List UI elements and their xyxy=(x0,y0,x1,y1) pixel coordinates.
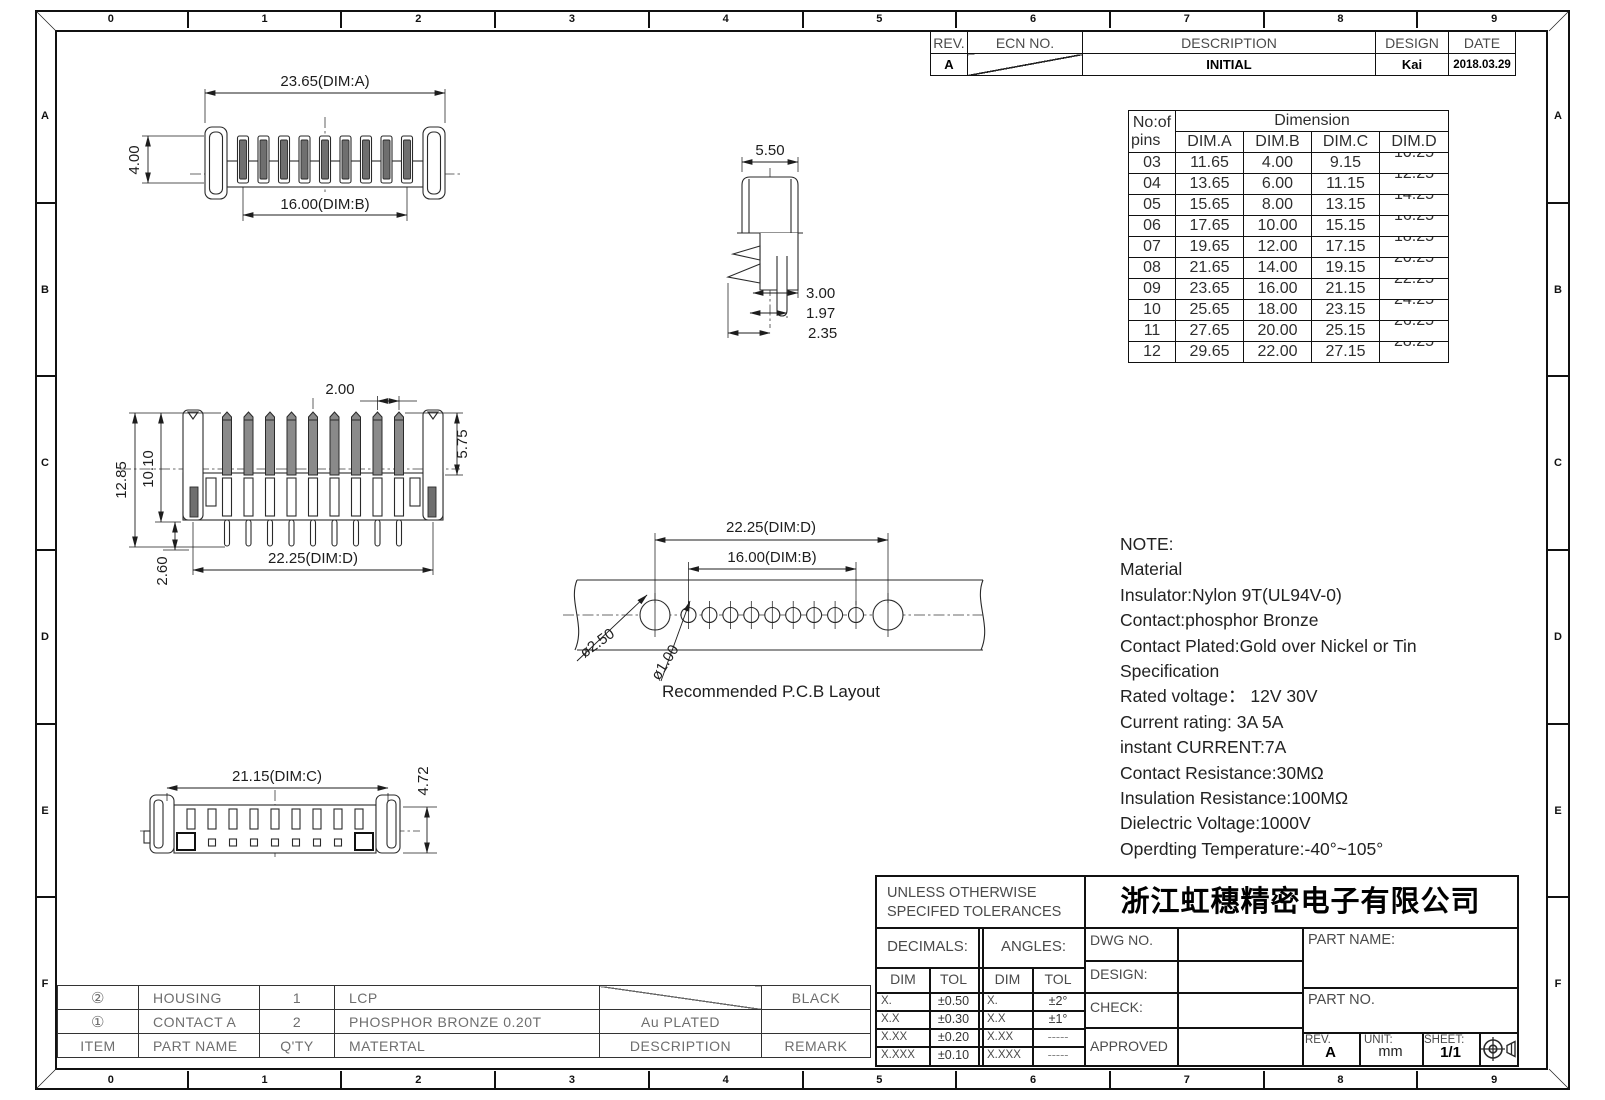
projection-angle-icon xyxy=(1480,1032,1517,1065)
table-row: 0719.6512.0017.1518.25 xyxy=(1129,237,1449,258)
tolerance-dim: X. xyxy=(881,992,892,1010)
decimals-label: DECIMALS: xyxy=(877,927,978,967)
tolerance-value: ±2° xyxy=(1032,992,1084,1010)
revision-table: REV. ECN NO. DESCRIPTION DESIGN DATE A I… xyxy=(930,31,1516,76)
grid-col-label: 8 xyxy=(1265,1071,1419,1089)
note-line: Dielectric Voltage:1000V xyxy=(1120,811,1530,836)
table-row: 0923.6516.0021.1522.25 xyxy=(1129,279,1449,300)
grid-col-label: 6 xyxy=(957,1071,1111,1089)
tolerance-dim: X.XX xyxy=(987,1028,1013,1046)
dim-label: 23.65(DIM:A) xyxy=(280,73,369,90)
company-name: 浙江虹穗精密电子有限公司 xyxy=(1084,877,1517,927)
tolerance-note-line2: SPECIFED TOLERANCES xyxy=(887,904,1061,920)
title-block: UNLESS OTHERWISE SPECIFED TOLERANCES 浙江虹… xyxy=(875,875,1519,1067)
dim-col-label: DIM xyxy=(877,967,929,992)
grid-row-label: A xyxy=(1548,30,1568,204)
rev-value: A xyxy=(931,54,968,76)
dim-label: 10.10 xyxy=(140,450,157,488)
grid-col-label: 3 xyxy=(496,10,650,28)
grid-col-label: 5 xyxy=(804,1071,958,1089)
grid-col-label: 4 xyxy=(650,1071,804,1089)
tolerance-dim: X. xyxy=(987,992,998,1010)
dim-col-label: DIM xyxy=(983,967,1032,992)
tolerance-note-line1: UNLESS OTHERWISE xyxy=(887,885,1037,901)
note-line: Rated voltage： 12V 30V xyxy=(1120,684,1530,709)
table-row: 0413.656.0011.1512.25 xyxy=(1129,174,1449,195)
view-bottom: 21.15(DIM:C) 4.72 xyxy=(135,735,470,860)
grid-col-label: 2 xyxy=(342,10,496,28)
tolerance-value: ----- xyxy=(1032,1046,1084,1064)
tolerance-value: ±0.20 xyxy=(929,1028,978,1046)
note-line: Current rating: 3A 5A xyxy=(1120,710,1530,735)
grid-col-label: 9 xyxy=(1418,1071,1570,1089)
table-row: 1229.6522.0027.1528.25 xyxy=(1129,342,1449,363)
engineering-drawing-sheet: 0 1 2 3 4 5 6 7 8 9 0 1 2 3 4 5 6 7 8 9 … xyxy=(0,0,1605,1100)
note-line: Contact Plated:Gold over Nickel or Tin xyxy=(1120,634,1530,659)
grid-row-label: A xyxy=(35,30,55,204)
pcb-layout-caption: Recommended P.C.B Layout xyxy=(662,682,880,701)
dim-label: 4.72 xyxy=(415,766,432,795)
dim-b-header: DIM.B xyxy=(1244,132,1312,153)
tol-col-label: TOL xyxy=(929,967,978,992)
note-line: NOTE: xyxy=(1120,532,1530,557)
date-header: DATE xyxy=(1449,32,1516,54)
sheet-value: 1/1 xyxy=(1422,1044,1479,1061)
grid-col-label: 4 xyxy=(650,10,804,28)
part-name-label: PART NAME: xyxy=(1308,932,1395,948)
table-row: 0821.6514.0019.1520.25 xyxy=(1129,258,1449,279)
ecn-header: ECN NO. xyxy=(968,32,1083,54)
pin-dimension-table: No:of pins Dimension DIM.A DIM.B DIM.C D… xyxy=(1128,110,1449,363)
dim-label: 22.25(DIM:D) xyxy=(726,519,816,536)
description-empty-cell xyxy=(600,986,762,1010)
note-line: Contact Resistance:30MΩ xyxy=(1120,761,1530,786)
grid-col-label: 5 xyxy=(804,10,958,28)
dim-c-header: DIM.C xyxy=(1312,132,1380,153)
angles-label: ANGLES: xyxy=(983,927,1084,967)
table-row: ② HOUSING 1 LCP BLACK xyxy=(58,986,871,1010)
table-row: 0617.6510.0015.1516.25 xyxy=(1129,216,1449,237)
grid-ruler-left: A B C D E F xyxy=(35,30,55,1070)
table-row: 1025.6518.0023.1524.25 xyxy=(1129,300,1449,321)
table-row: ① CONTACT A 2 PHOSPHOR BRONZE 0.20T Au P… xyxy=(58,1010,871,1034)
date-value: 2018.03.29 xyxy=(1449,54,1516,76)
grid-row-label: C xyxy=(35,377,55,551)
table-row: 0311.654.009.1510.25 xyxy=(1129,153,1449,174)
dim-label: 5.75 xyxy=(454,429,471,458)
grid-row-label: F xyxy=(1548,898,1568,1070)
grid-col-label: 0 xyxy=(35,1071,189,1089)
tolerance-dim: X.XXX xyxy=(987,1046,1021,1064)
dim-label: 4.00 xyxy=(126,145,143,174)
grid-row-label: D xyxy=(35,551,55,725)
note-line: Material xyxy=(1120,557,1530,582)
view-pcb-layout: 22.25(DIM:D) 16.00(DIM:B) ø2.50 ø1.00 Re… xyxy=(555,485,990,710)
grid-col-label: 0 xyxy=(35,10,189,28)
tolerance-dim: X.XX xyxy=(881,1028,907,1046)
note-line: Insulation Resistance:100MΩ xyxy=(1120,786,1530,811)
tolerance-dim: X.X xyxy=(987,1010,1006,1028)
note-line: instant CURRENT:7A xyxy=(1120,735,1530,760)
dim-label: 21.15(DIM:C) xyxy=(232,768,322,785)
part-no-label: PART NO. xyxy=(1308,992,1375,1008)
grid-ruler-top: 0 1 2 3 4 5 6 7 8 9 xyxy=(35,10,1570,28)
parts-header-row: ITEM PART NAME Q'TY MATERTAL DESCRIPTION… xyxy=(58,1034,871,1058)
dim-a-header: DIM.A xyxy=(1176,132,1244,153)
grid-col-label: 8 xyxy=(1265,10,1419,28)
approved-label: APPROVED xyxy=(1090,1038,1168,1054)
view-top: 23.65(DIM:A) 4.00 16.00(DIM:B) xyxy=(120,65,470,235)
grid-col-label: 1 xyxy=(189,1071,343,1089)
table-row: 1127.6520.0025.1526.25 xyxy=(1129,321,1449,342)
grid-col-label: 9 xyxy=(1418,10,1570,28)
dwg-no-label: DWG NO. xyxy=(1090,932,1153,948)
table-row: 0515.658.0013.1514.25 xyxy=(1129,195,1449,216)
item-number: ② xyxy=(58,986,139,1010)
check-label: CHECK: xyxy=(1090,999,1143,1015)
grid-row-label: F xyxy=(35,898,55,1070)
tol-col-label: TOL xyxy=(1032,967,1084,992)
grid-row-label: C xyxy=(1548,377,1568,551)
note-line: Specification xyxy=(1120,659,1530,684)
unit-value: mm xyxy=(1359,1044,1422,1060)
view-side: 5.50 3.00 1.97 2.35 xyxy=(665,130,890,345)
rev-value: A xyxy=(1302,1044,1359,1061)
grid-row-label: E xyxy=(35,725,55,899)
grid-row-label: B xyxy=(1548,204,1568,378)
grid-row-label: E xyxy=(1548,725,1568,899)
grid-ruler-bottom: 0 1 2 3 4 5 6 7 8 9 xyxy=(35,1071,1570,1089)
grid-ruler-right: A B C D E F xyxy=(1548,30,1568,1070)
tolerance-value: ±1° xyxy=(1032,1010,1084,1028)
view-front: 2.00 12.85 10.10 5.75 2.60 22.25(DIM:D) xyxy=(105,370,470,605)
grid-row-label: D xyxy=(1548,551,1568,725)
note-line: Contact:phosphor Bronze xyxy=(1120,608,1530,633)
description-header: DESCRIPTION xyxy=(1083,32,1376,54)
dim-label: 22.25(DIM:D) xyxy=(268,550,358,567)
dim-label: 12.85 xyxy=(113,461,130,499)
hole-diameter-label: ø1.00 xyxy=(648,642,683,684)
grid-col-label: 2 xyxy=(342,1071,496,1089)
note-line: Insulator:Nylon 9T(UL94V-0) xyxy=(1120,583,1530,608)
tolerance-dim: X.XXX xyxy=(881,1046,915,1064)
rev-header: REV. xyxy=(931,32,968,54)
design-header: DESIGN xyxy=(1376,32,1449,54)
dim-label: 16.00(DIM:B) xyxy=(280,196,369,213)
grid-col-label: 7 xyxy=(1111,10,1265,28)
tolerance-value: ±0.10 xyxy=(929,1046,978,1064)
dimension-span-header: Dimension xyxy=(1176,111,1449,132)
ecn-empty-cell xyxy=(968,54,1083,76)
grid-col-label: 3 xyxy=(496,1071,650,1089)
description-value: INITIAL xyxy=(1083,54,1376,76)
dim-label: 2.60 xyxy=(154,556,171,585)
dim-label: 1.97 xyxy=(806,305,835,322)
design-label: DESIGN: xyxy=(1090,966,1148,982)
hole-diameter-label: ø2.50 xyxy=(577,625,618,661)
dim-label: 2.00 xyxy=(325,381,354,398)
parts-list-table: ② HOUSING 1 LCP BLACK ① CONTACT A 2 PHOS… xyxy=(57,985,871,1058)
dim-d-header: DIM.D xyxy=(1380,132,1449,153)
tolerance-value: ±0.30 xyxy=(929,1010,978,1028)
note-line: Operdting Temperature:-40°~105° xyxy=(1120,837,1530,862)
tolerance-value: ±0.50 xyxy=(929,992,978,1010)
grid-col-label: 1 xyxy=(189,10,343,28)
pins-column-header: No:of pins xyxy=(1129,111,1176,153)
notes-block: NOTE: Material Insulator:Nylon 9T(UL94V-… xyxy=(1120,532,1530,862)
dim-label: 2.35 xyxy=(808,325,837,342)
tolerance-dim: X.X xyxy=(881,1010,900,1028)
dim-label: 3.00 xyxy=(806,285,835,302)
design-value: Kai xyxy=(1376,54,1449,76)
grid-col-label: 6 xyxy=(957,10,1111,28)
tolerance-value: ----- xyxy=(1032,1028,1084,1046)
grid-row-label: B xyxy=(35,204,55,378)
item-number: ① xyxy=(58,1010,139,1034)
dim-label: 5.50 xyxy=(755,142,784,159)
dim-label: 16.00(DIM:B) xyxy=(727,549,816,566)
grid-col-label: 7 xyxy=(1111,1071,1265,1089)
